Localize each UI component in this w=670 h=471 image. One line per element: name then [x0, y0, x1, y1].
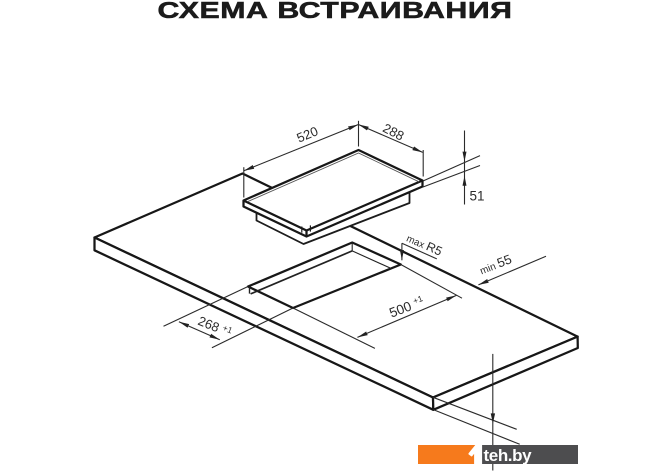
- svg-text:min 55: min 55: [477, 251, 514, 277]
- svg-text:520: 520: [294, 123, 320, 145]
- svg-text:268 +1: 268 +1: [196, 313, 234, 340]
- svg-text:51: 51: [470, 189, 485, 204]
- svg-text:288: 288: [380, 120, 406, 143]
